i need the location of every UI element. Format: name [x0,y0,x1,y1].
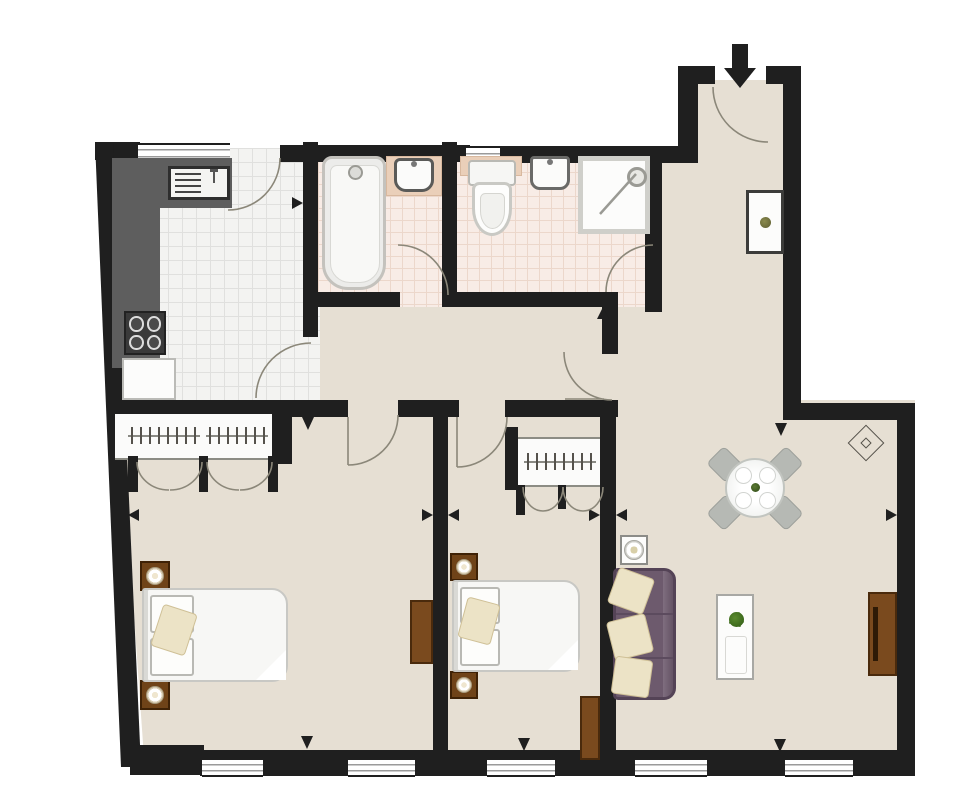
sideboard-handle [873,607,878,661]
marker-icon [448,509,459,521]
burner-icon [129,316,144,332]
kitchen-hob [124,311,166,355]
plate [759,467,776,484]
coffee-table [716,594,754,680]
burner-icon [129,335,144,351]
tv-sideboard [868,592,897,676]
plant-icon [751,483,760,492]
sink-drainer [175,173,201,193]
wall-bath1-bath2-partition [442,142,457,307]
wall-baths-bottom-c [648,292,662,307]
marker-icon [774,739,786,752]
window-bedroom1-a [202,758,263,777]
table-lamp-icon [146,686,164,704]
window-living-b [785,758,853,777]
basin-faucet-icon [411,161,417,167]
wall-closet1-right [272,400,292,464]
lamp-icon [624,540,644,560]
dining-set [713,446,797,530]
hangers-icon [527,453,593,470]
toilet-bowl [472,182,512,236]
bathtub-inner [330,165,380,283]
table-lamp-icon [146,567,164,585]
bathtub [322,156,386,290]
table-lamp-icon [456,559,472,575]
sink-faucet-icon [213,171,215,183]
burner-icon [147,316,162,332]
table-lamp-icon [456,677,472,693]
shower-enclosure [578,156,650,234]
side-table [620,535,648,565]
dresser-bedroom1 [410,600,433,664]
wardrobe-door-jamb [128,456,138,492]
burner-icon [147,335,162,351]
wall-bedroom2-top-a [448,400,459,417]
console-table [746,190,784,254]
basin-faucet-icon [547,159,553,165]
marker-icon [616,509,627,521]
cushion [611,656,654,699]
nightstand [140,561,170,591]
blanket-fold [548,640,578,670]
wall-living-step [783,403,915,420]
wall-entry-top-right [766,66,801,84]
marker-icon [886,509,897,521]
wall-bottom-left-corner [130,745,204,775]
floor-plan [0,0,980,805]
nightstand [140,680,170,710]
entry-arrow-head [724,68,756,88]
entry-arrow-stem [732,44,748,68]
hangers-icon [209,427,265,444]
marker-icon [302,417,314,430]
marker-icon [589,509,600,521]
dining-table-top [725,458,785,518]
wall-closet2-left [505,427,518,490]
hangers-icon [131,427,197,444]
plant-icon [760,217,771,228]
wall-bedroom1-top-b [398,400,434,417]
wardrobe-door-jamb [516,485,525,515]
washbasin-2 [530,156,570,190]
wall-right [897,403,915,776]
wall-hall-living-stub [602,292,618,354]
plate [735,492,752,509]
wardrobe-door-jamb [199,456,208,492]
sink-faucet-base [210,169,218,172]
marker-icon [301,736,313,749]
marker-icon [292,197,303,209]
kitchen-unit [122,358,176,400]
plate [735,467,752,484]
nightstand [450,671,478,699]
wall-baths-bottom-b [448,292,614,307]
wall-bedroom-partition [433,400,448,776]
wardrobe-door-jamb [268,456,278,492]
wall-kitchen-bath1-partition [303,142,318,337]
plant-icon [729,612,744,627]
marker-icon [518,738,530,751]
dresser-bedroom2 [580,696,600,760]
marker-icon [775,423,787,436]
ceiling-light-inner [860,437,871,448]
toilet-bowl-inner [480,193,505,229]
marker-icon [597,307,609,319]
washbasin-1 [394,158,434,192]
bath-faucet-icon [348,165,363,180]
wardrobe-door-jamb [558,485,566,509]
blanket-fold [256,650,286,680]
wall-baths-bottom-a [303,292,400,307]
window-living-a [635,758,707,777]
window-bedroom2 [487,758,555,777]
kitchen-sink [168,166,230,200]
wall-corridor-left-upper [678,66,698,150]
coffee-table-tray [725,636,747,674]
window-bedroom1-b [348,758,415,777]
nightstand [450,553,478,581]
marker-icon [128,509,139,521]
marker-icon [422,509,433,521]
shower-head-icon [627,167,647,187]
wall-corridor-right [783,66,801,420]
plate [759,492,776,509]
entrance-floor-lower [648,148,800,414]
